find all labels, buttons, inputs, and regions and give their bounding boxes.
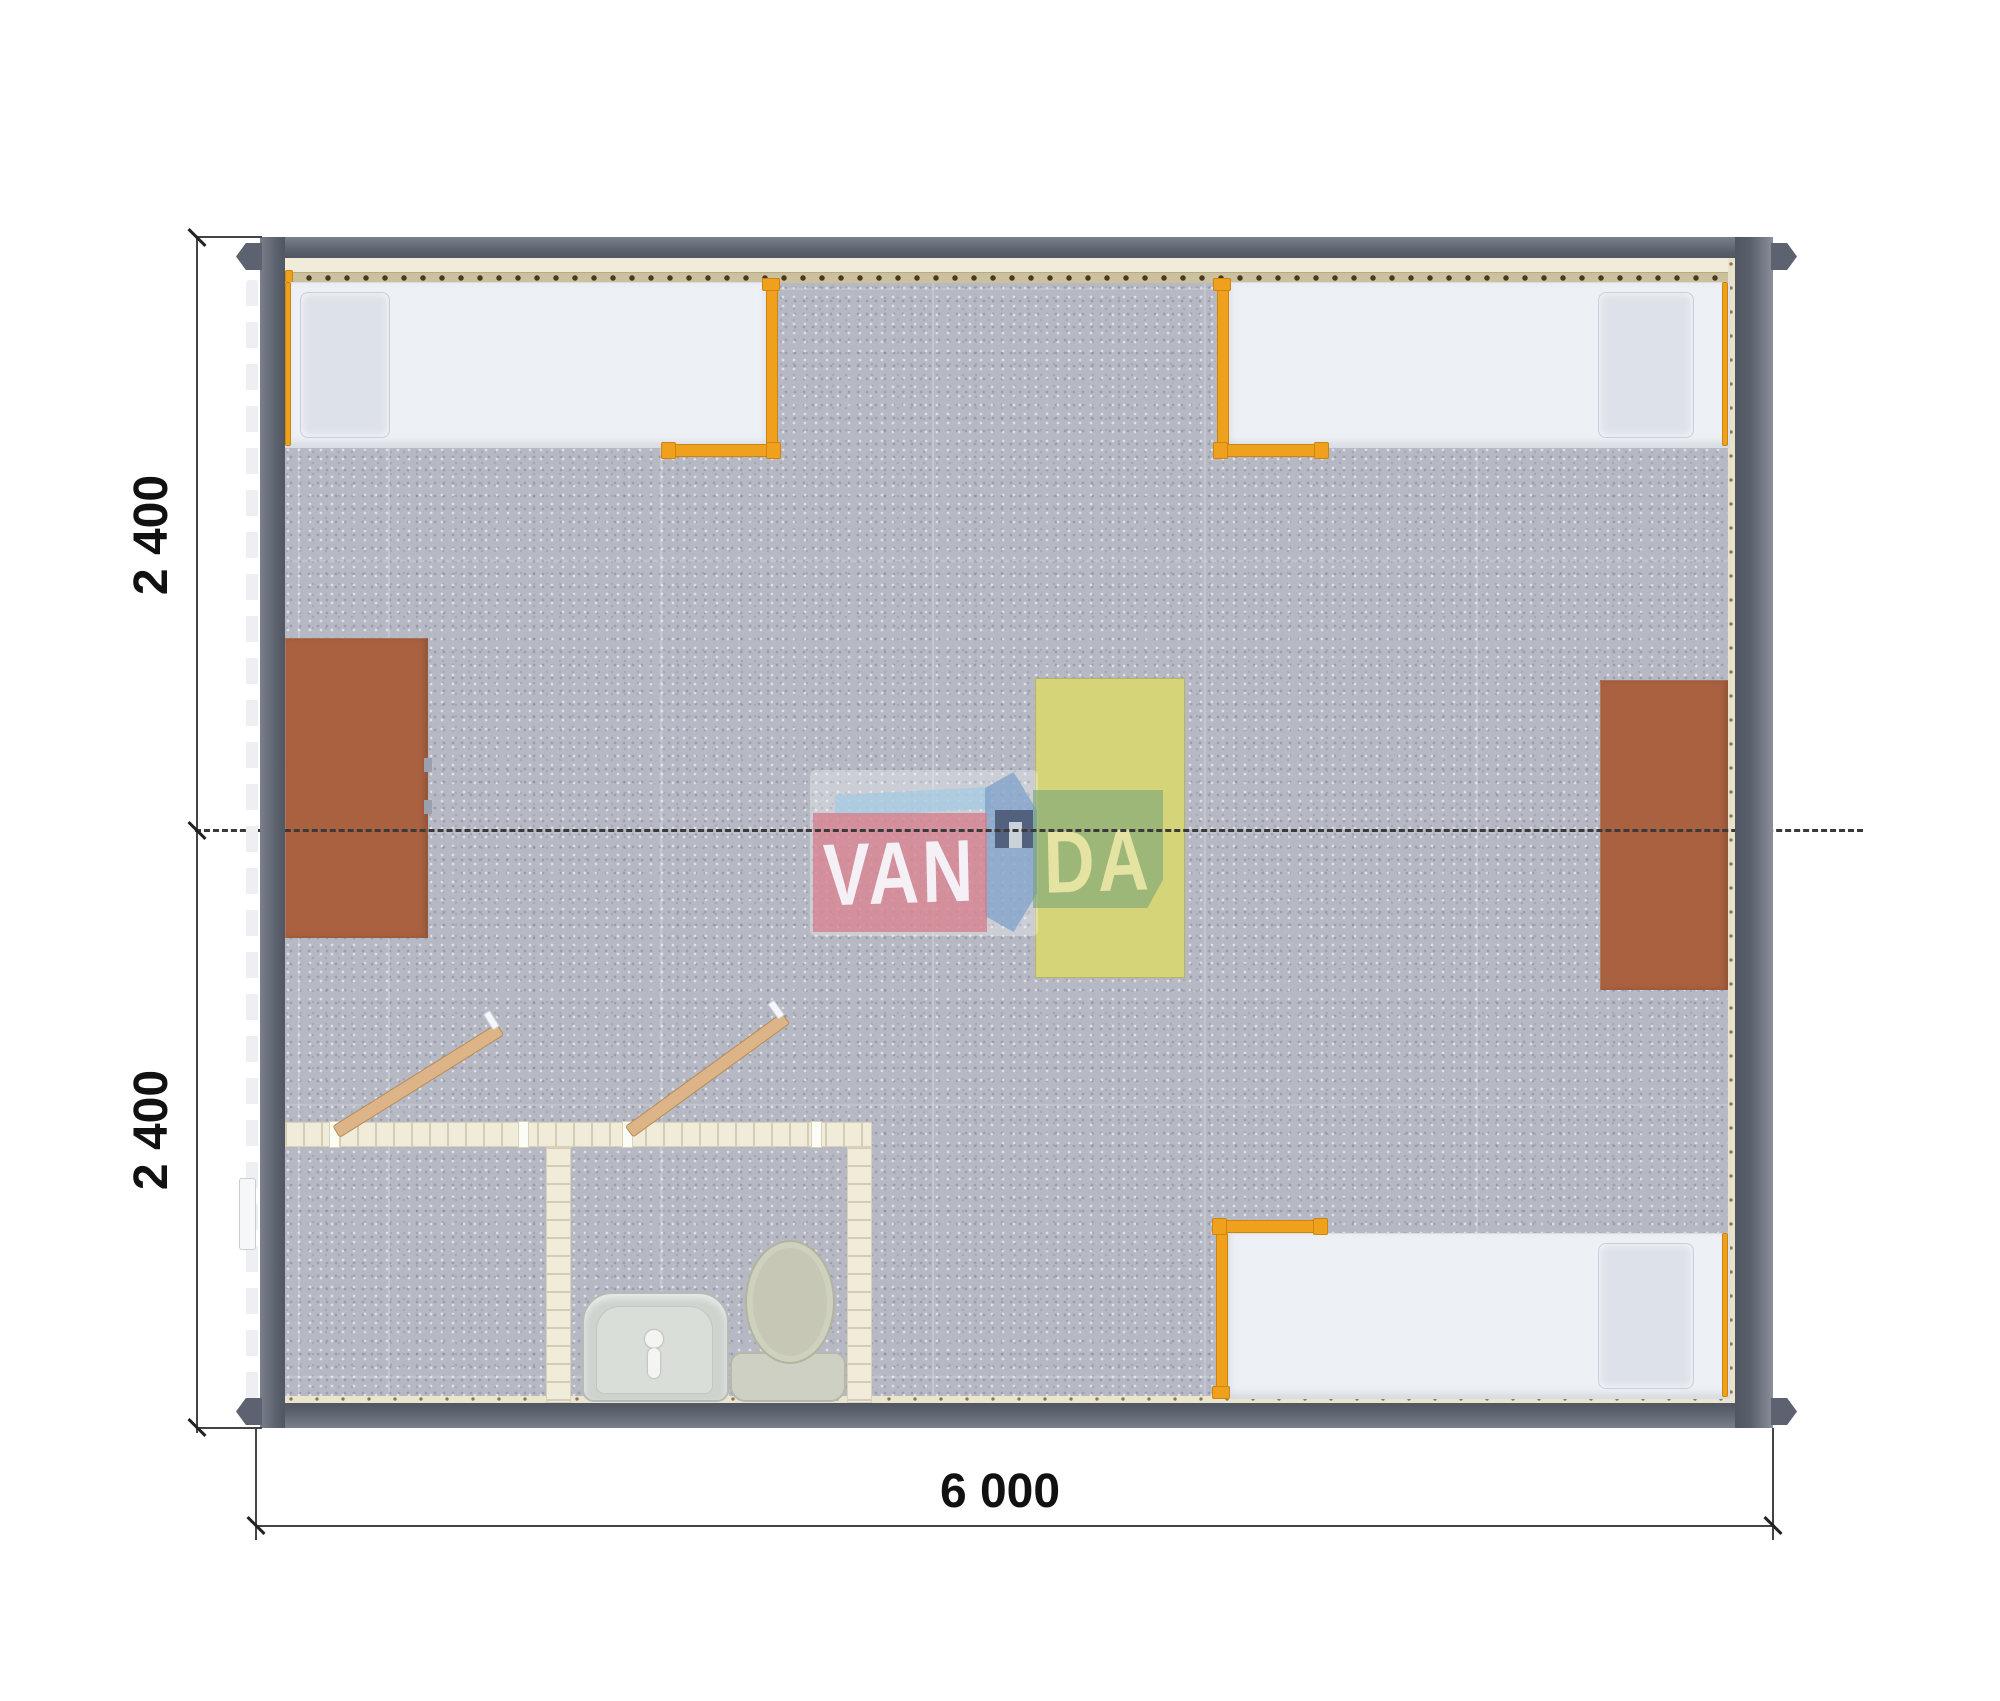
bed-frame-cap (766, 442, 781, 459)
dimension-label-left-bottom: 2 400 (122, 1030, 182, 1230)
bed-frame-rail (1722, 282, 1728, 446)
bed-frame-rail (1217, 444, 1327, 457)
bed-frame-cap (762, 278, 780, 291)
bed-frame-rail (1216, 1233, 1228, 1397)
logo-navy-notch (1009, 822, 1022, 848)
pillow (1598, 1243, 1694, 1389)
sink-faucet (645, 1330, 663, 1348)
door-jamb (812, 1122, 821, 1147)
wall-bottom (260, 1403, 1773, 1428)
logo-text-da: DA (1043, 784, 1154, 913)
top-wall-lining (285, 258, 1735, 272)
bed-frame-rail (1217, 282, 1229, 446)
desk-right (1600, 680, 1728, 990)
desk-left-handle (424, 758, 432, 772)
dimension-line-left (196, 237, 198, 1433)
bed-frame-cap (1212, 1218, 1227, 1235)
bed-frame-rail (667, 444, 777, 457)
bed-frame-cap (1213, 442, 1228, 459)
bed-frame-rail (766, 282, 778, 446)
bathroom-partition-front (285, 1122, 872, 1147)
wall-left (260, 237, 285, 1428)
bed-frame-rail (1216, 1220, 1326, 1233)
corner-casting-top-left (236, 243, 262, 270)
bed-frame-cap (1313, 1218, 1328, 1235)
pillow (1598, 292, 1694, 438)
module-joint-line (195, 829, 1863, 832)
dimension-line-bottom (255, 1525, 1775, 1527)
bed-frame-rail (1722, 1233, 1728, 1397)
bathroom-partition-middle (546, 1147, 571, 1403)
entry-door-marker (239, 1178, 256, 1250)
corner-casting-top-right (1771, 243, 1797, 270)
wall-top (260, 237, 1773, 258)
bed-frame-rail (285, 282, 291, 446)
wall-right (1735, 237, 1773, 1428)
logo-green-box: DA (1033, 790, 1163, 908)
bed-frame-cap (1314, 442, 1329, 459)
logo-text-van: VAN (822, 819, 977, 926)
extension-line (196, 1427, 262, 1429)
bed-frame-cap (1213, 278, 1231, 291)
pillow (300, 292, 390, 438)
extension-line (196, 236, 262, 238)
door-jamb (519, 1122, 528, 1147)
desk-left (285, 638, 428, 938)
bathroom-partition-right (847, 1147, 872, 1403)
dimension-label-bottom: 6 000 (900, 1462, 1100, 1522)
bed-frame-cap (661, 442, 676, 459)
toilet-icon (745, 1240, 835, 1364)
corner-casting-bottom-left (236, 1398, 262, 1425)
dimension-label-left-top: 2 400 (122, 435, 182, 635)
sink-faucet-stem (648, 1348, 660, 1378)
desk-left-handle (424, 800, 432, 814)
bed-frame-cap (1212, 1386, 1230, 1399)
floor-plan: VAN DA 2 400 2 400 6 000 (0, 0, 2000, 1701)
corner-casting-bottom-right (1771, 1398, 1797, 1425)
